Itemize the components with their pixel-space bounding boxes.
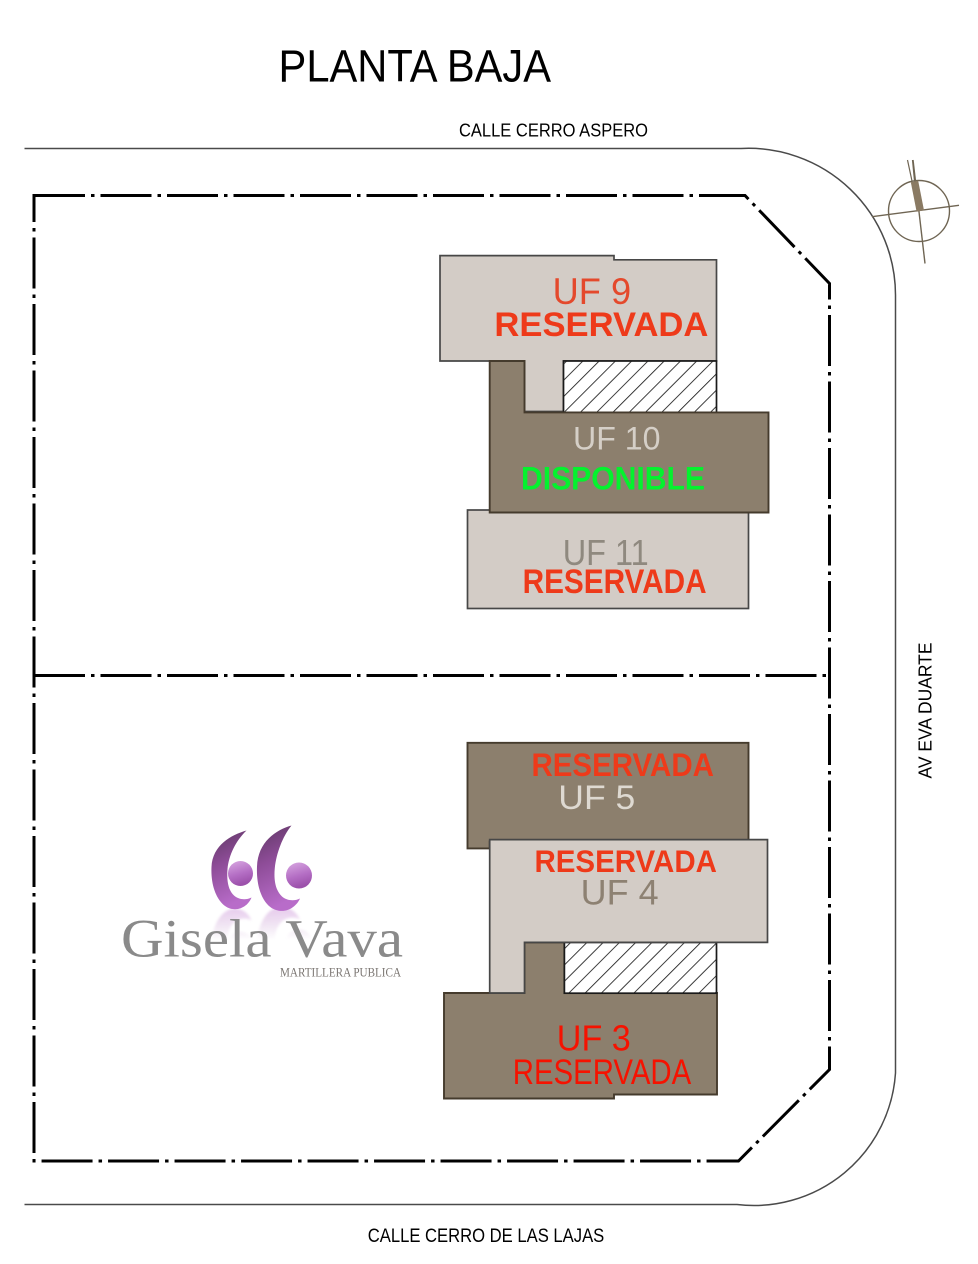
- svg-text:DISPONIBLE: DISPONIBLE: [521, 461, 705, 497]
- svg-text:RESERVADA: RESERVADA: [513, 1053, 692, 1092]
- svg-text:Gisela Vava: Gisela Vava: [121, 909, 403, 969]
- svg-text:RESERVADA: RESERVADA: [523, 563, 707, 601]
- svg-text:UF 5: UF 5: [558, 779, 635, 817]
- svg-text:UF 4: UF 4: [581, 872, 659, 912]
- svg-text:MARTILLERA PUBLICA: MARTILLERA PUBLICA: [280, 965, 402, 980]
- svg-text:UF 10: UF 10: [573, 421, 661, 457]
- svg-text:AV EVA DUARTE: AV EVA DUARTE: [914, 643, 935, 779]
- svg-text:CALLE CERRO ASPERO: CALLE CERRO ASPERO: [459, 121, 648, 141]
- svg-text:CALLE CERRO DE LAS LAJAS: CALLE CERRO DE LAS LAJAS: [368, 1226, 605, 1247]
- svg-text:PLANTA BAJA: PLANTA BAJA: [279, 41, 552, 92]
- svg-text:RESERVADA: RESERVADA: [494, 306, 708, 344]
- svg-text:RESERVADA: RESERVADA: [531, 747, 714, 783]
